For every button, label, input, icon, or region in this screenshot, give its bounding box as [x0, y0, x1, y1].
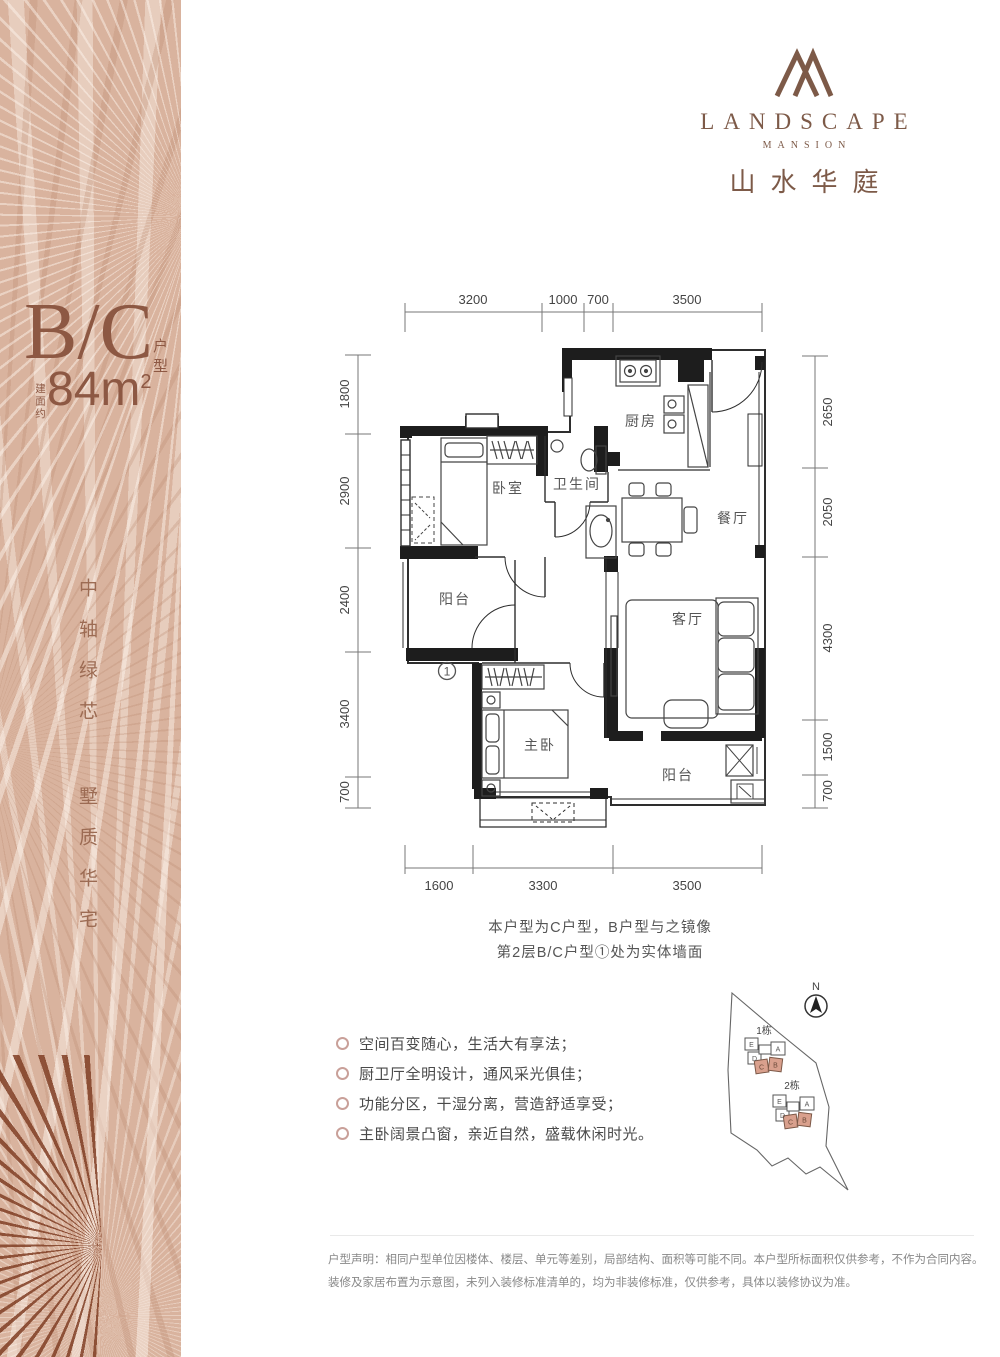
slogan-line-1: 中轴绿芯: [73, 578, 100, 742]
feature-list: 空间百变随心，生活大有享法； 厨卫厅全明设计，通风采光俱佳； 功能分区，干湿分离…: [336, 1028, 654, 1148]
svg-text:3500: 3500: [673, 292, 702, 307]
brand-name-sub: MANSION: [688, 140, 920, 151]
brand-logo: LANDSCAPE MANSION 山水华庭: [688, 46, 920, 199]
footer-divider: [330, 1235, 974, 1236]
svg-text:E: E: [777, 1099, 782, 1106]
bullet-ring-icon: [336, 1037, 349, 1050]
disclaimer: 户型声明：相同户型单位因楼体、楼层、单元等差别，局部结构、面积等可能不同。本户型…: [328, 1249, 984, 1295]
feature-item: 厨卫厅全明设计，通风采光俱佳；: [336, 1058, 654, 1088]
svg-text:700: 700: [337, 781, 352, 803]
feature-text: 厨卫厅全明设计，通风采光俱佳；: [359, 1063, 592, 1084]
feature-item: 空间百变随心，生活大有享法；: [336, 1028, 654, 1058]
svg-text:2900: 2900: [337, 477, 352, 506]
bullet-ring-icon: [336, 1127, 349, 1140]
svg-text:D: D: [780, 1113, 785, 1120]
flyer-page: B/C 户型 建面约 84m2 中轴绿芯 墅质华宅 LANDSCAPE MANS…: [0, 0, 1000, 1357]
svg-text:1: 1: [444, 665, 451, 679]
svg-text:4300: 4300: [820, 624, 835, 653]
slogan-line-2: 墅质华宅: [73, 786, 100, 950]
plan-note-line-2: 第2层B/C户型①处为实体墙面: [330, 941, 870, 966]
mountain-monogram-icon: [769, 46, 839, 98]
svg-text:C: C: [788, 1120, 793, 1127]
feature-item: 主卧阔景凸窗，亲近自然，盛载休闲时光。: [336, 1118, 654, 1148]
marker-1: 1: [439, 663, 456, 680]
svg-text:3300: 3300: [529, 878, 558, 893]
site-map: N 1栋 E D A C B: [690, 965, 980, 1210]
svg-text:2栋: 2栋: [784, 1079, 800, 1092]
bullet-ring-icon: [336, 1067, 349, 1080]
wall-outline: [408, 350, 765, 827]
svg-text:E: E: [749, 1042, 754, 1049]
area-value: 84m2: [47, 366, 152, 414]
unit-code: B/C: [24, 292, 153, 372]
svg-text:3400: 3400: [337, 700, 352, 729]
disclaimer-line-1: 户型声明：相同户型单位因楼体、楼层、单元等差别，局部结构、面积等可能不同。本户型…: [328, 1249, 984, 1272]
svg-text:3200: 3200: [459, 292, 488, 307]
svg-text:1600: 1600: [425, 878, 454, 893]
feature-text: 功能分区，干湿分离，营造舒适享受；: [359, 1093, 623, 1114]
plan-note-line-1: 本户型为C户型，B户型与之镜像: [330, 916, 870, 941]
svg-text:B: B: [773, 1063, 778, 1070]
room-label-bathroom: 卫生间: [553, 476, 601, 492]
svg-text:2050: 2050: [820, 498, 835, 527]
disclaimer-line-2: 装修及家居布置为示意图，未列入装修标准清单的，均为非装修标准，仅供参考，具体以装…: [328, 1272, 984, 1295]
brand-name-en: LANDSCAPE: [688, 109, 920, 135]
svg-text:700: 700: [587, 292, 609, 307]
svg-text:D: D: [752, 1056, 757, 1063]
svg-text:1500: 1500: [820, 733, 835, 762]
svg-text:1800: 1800: [337, 380, 352, 409]
room-label-balcony-top: 阳台: [439, 591, 471, 607]
svg-text:1000: 1000: [549, 292, 578, 307]
feature-text: 空间百变随心，生活大有享法；: [359, 1033, 576, 1054]
bullet-ring-icon: [336, 1097, 349, 1110]
feature-text: 主卧阔景凸窗，亲近自然，盛载休闲时光。: [359, 1123, 654, 1144]
svg-text:B: B: [802, 1118, 807, 1125]
area-prefix: 建面约: [33, 383, 48, 421]
brand-name-cn: 山水华庭: [688, 162, 920, 199]
room-label-living: 客厅: [672, 611, 704, 627]
room-label-master: 主卧: [524, 737, 556, 753]
svg-text:2400: 2400: [337, 586, 352, 615]
area-superscript: 2: [140, 371, 151, 393]
floorplan: 3200 1000 700 3500 1800 2900 2400 3400 7…: [330, 280, 890, 930]
fan-pattern-decoration: [0, 1055, 102, 1357]
room-label-balcony-bottom: 阳台: [662, 767, 694, 783]
svg-text:N: N: [812, 981, 820, 993]
svg-text:3500: 3500: [673, 878, 702, 893]
svg-text:A: A: [776, 1047, 781, 1054]
svg-text:2650: 2650: [820, 398, 835, 427]
dimension-lines: [345, 303, 828, 874]
svg-text:700: 700: [820, 780, 835, 802]
duct-shaft: [466, 414, 498, 428]
room-label-dining: 餐厅: [717, 510, 749, 526]
feature-item: 功能分区，干湿分离，营造舒适享受；: [336, 1088, 654, 1118]
svg-text:A: A: [805, 1102, 810, 1109]
unit-code-suffix: 户型: [149, 338, 170, 378]
room-label-bedroom: 卧室: [492, 480, 524, 496]
svg-text:1栋: 1栋: [756, 1024, 772, 1037]
sidebar-pattern-panel: B/C 户型 建面约 84m2 中轴绿芯 墅质华宅: [0, 0, 181, 1357]
compass-icon: N: [805, 981, 827, 1017]
area-number: 84m: [47, 363, 140, 416]
room-label-kitchen: 厨房: [625, 413, 657, 429]
plan-notes: 本户型为C户型，B户型与之镜像 第2层B/C户型①处为实体墙面: [330, 916, 870, 966]
svg-text:C: C: [759, 1065, 764, 1072]
